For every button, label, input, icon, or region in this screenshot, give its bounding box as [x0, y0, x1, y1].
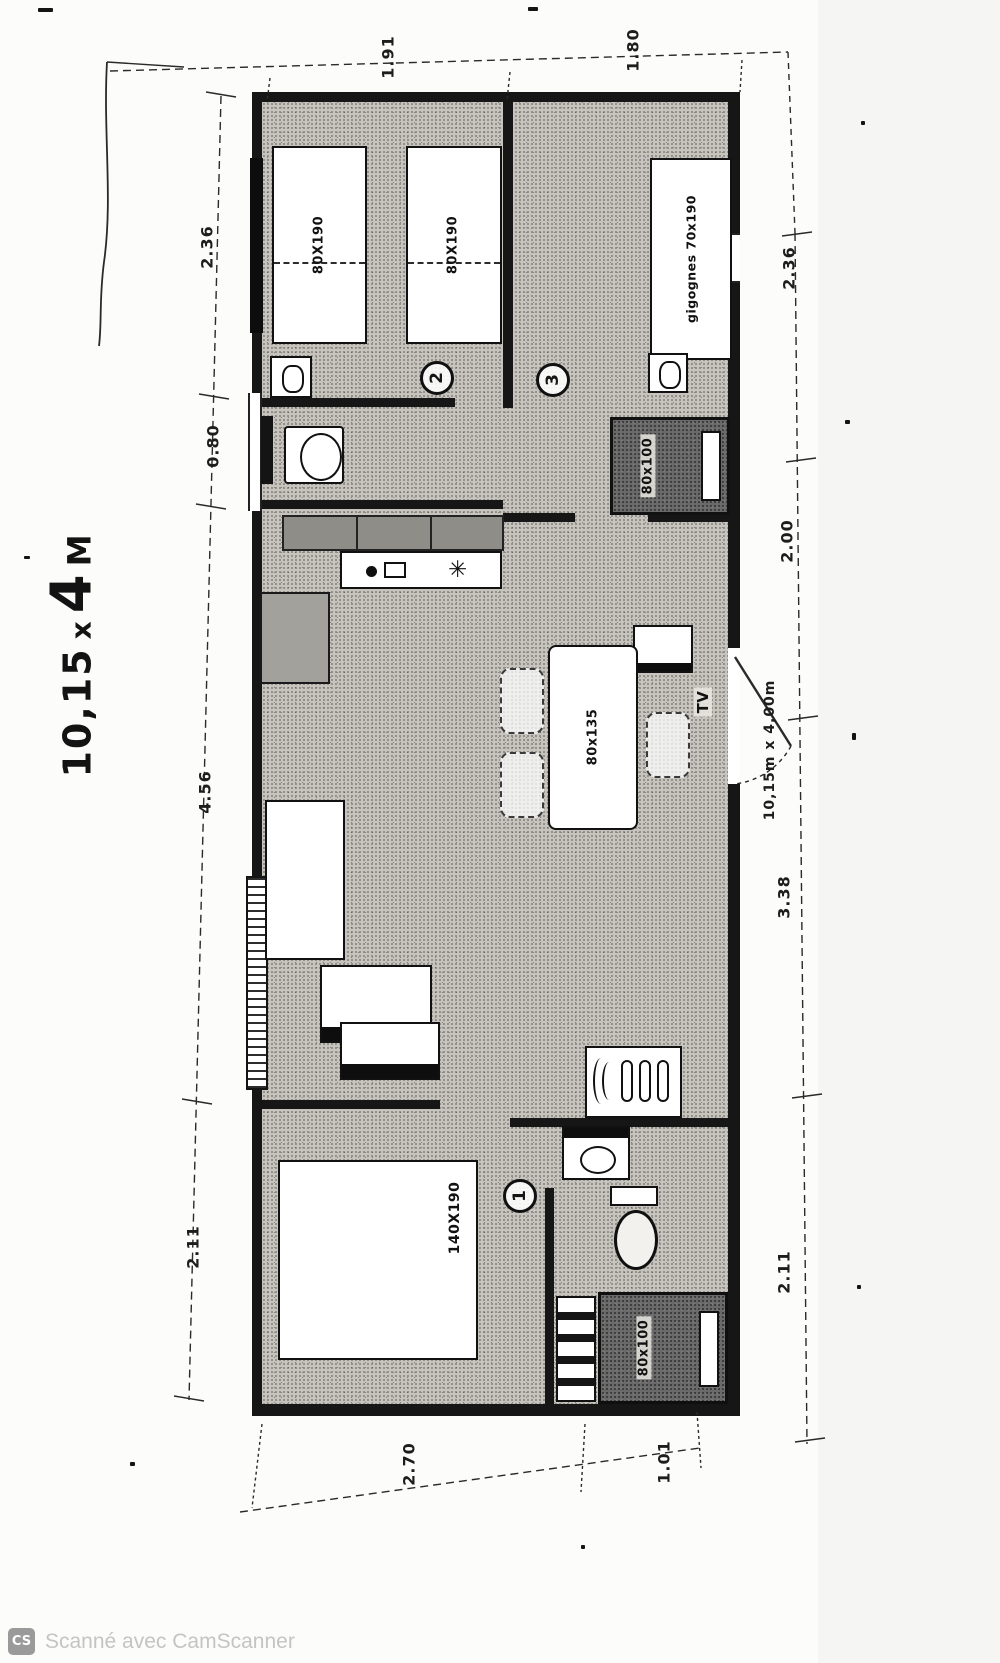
dim-tick: [740, 60, 742, 92]
title-bracket-line: [107, 62, 184, 67]
dim-tick: [782, 232, 812, 236]
camscanner-watermark: CS Scanné avec CamScanner: [8, 1628, 295, 1655]
dim-line-left: [189, 96, 221, 1400]
dim-drop-right: [788, 52, 795, 233]
dim-left-3: 4.56: [196, 770, 215, 813]
dimension-lines: [0, 0, 1000, 1663]
dim-line-right: [795, 233, 807, 1444]
dim-right-3: 3.38: [775, 875, 794, 918]
camscanner-watermark-text: Scanné avec CamScanner: [45, 1630, 295, 1654]
dim-line-top: [110, 52, 788, 71]
dim-tick: [792, 1094, 822, 1098]
dim-tick: [786, 458, 816, 462]
dim-tick: [795, 1438, 825, 1442]
scanned-floor-plan-page: 10,15 x 4 M 80X190: [0, 0, 1000, 1663]
dim-bottom-1: 2.70: [400, 1442, 419, 1485]
dim-tick: [507, 72, 510, 100]
dim-left-1: 2.36: [198, 225, 217, 268]
dim-right-4: 2.11: [775, 1250, 794, 1293]
dim-left-4: 2.11: [184, 1225, 203, 1268]
dim-right-2: 2.00: [778, 519, 797, 562]
dim-right-1: 2.36: [780, 246, 799, 289]
dim-bottom-2: 1.01: [655, 1440, 674, 1483]
dim-tick: [252, 1424, 262, 1508]
camscanner-badge-icon: CS: [8, 1628, 35, 1655]
dim-left-2: 0.80: [204, 424, 223, 467]
dim-top-1: 1.91: [379, 35, 398, 78]
dim-overall: 10,15m x 4,00m: [762, 680, 778, 821]
dim-tick: [581, 1424, 585, 1492]
dim-tick: [267, 78, 270, 102]
dim-top-2: 1.80: [624, 28, 643, 71]
dim-tick: [697, 1412, 701, 1468]
title-wavy-line: [99, 62, 108, 346]
dim-tick: [788, 716, 818, 720]
dim-line-bottom: [240, 1448, 700, 1512]
